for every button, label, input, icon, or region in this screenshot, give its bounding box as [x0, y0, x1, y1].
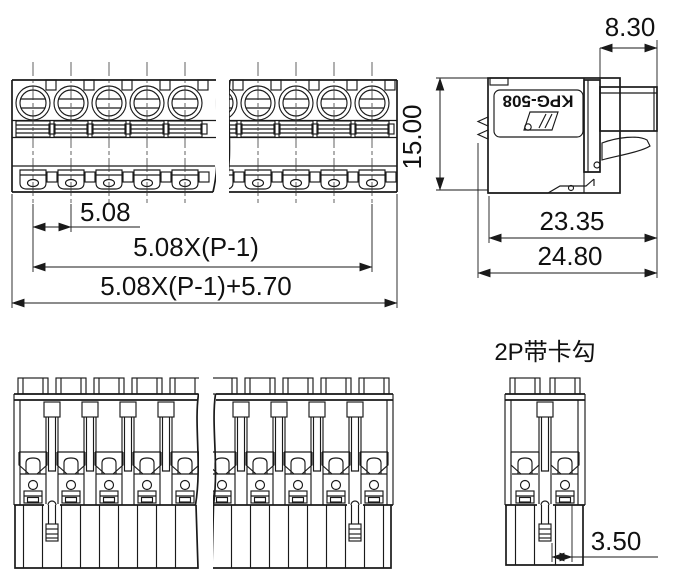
screw-pole — [92, 62, 133, 204]
clamp-cell — [95, 452, 123, 503]
clamp-cell — [208, 452, 236, 503]
screw-pole — [355, 62, 396, 204]
latch-lever — [602, 137, 650, 160]
wire-tab — [510, 378, 540, 394]
dim-plug-width: 8.30 — [605, 12, 656, 42]
rear-view-left-section — [14, 378, 200, 568]
dim-depth-body: 23.35 — [539, 206, 604, 236]
clamp-cell — [322, 452, 350, 503]
wire-tab — [321, 378, 351, 394]
wire-tab — [245, 378, 275, 394]
screw-pole — [279, 62, 320, 204]
dim-span: 5.08X(P-1) — [133, 232, 259, 262]
clamp-cell — [133, 452, 161, 503]
screw-pole — [130, 62, 171, 204]
release-rod — [44, 402, 60, 505]
clamp-cell — [19, 452, 47, 503]
dim-depth-total: 24.80 — [537, 241, 602, 271]
wire-tab — [56, 378, 86, 394]
wire-tab — [132, 378, 162, 394]
front-view: 5.08 5.08X(P-1) 5.08X(P-1)+5.70 — [12, 62, 397, 308]
front-dimensions: 5.08 5.08X(P-1) 5.08X(P-1)+5.70 — [12, 194, 397, 308]
screw-pole — [317, 62, 358, 204]
dim-total: 5.08X(P-1)+5.70 — [100, 271, 292, 301]
wire-tab — [94, 378, 124, 394]
lock-hook-pin — [347, 501, 363, 542]
release-rod — [158, 402, 174, 505]
mount-tabs — [478, 117, 488, 139]
wire-tab — [550, 378, 580, 394]
clamp-cell — [171, 452, 199, 503]
wire-tab — [283, 378, 313, 394]
clamp-cell — [511, 452, 539, 503]
hook-variant-view: 2P带卡勾 3.50 — [494, 339, 658, 565]
clamp-cell — [284, 452, 312, 503]
side-dimensions: 8.30 15.00 23.35 24.80 — [397, 12, 657, 278]
hook-view-title: 2P带卡勾 — [494, 339, 595, 366]
wire-tab — [207, 378, 237, 394]
drawing-sheet: 5.08 5.08X(P-1) 5.08X(P-1)+5.70 KPG-508 — [0, 0, 682, 587]
release-rod — [233, 402, 249, 505]
front-view-right-section — [203, 62, 397, 204]
wire-tab — [359, 378, 389, 394]
screw-pole — [168, 62, 209, 204]
release-rod — [309, 402, 325, 505]
technical-drawing: 5.08 5.08X(P-1) 5.08X(P-1)+5.70 KPG-508 — [0, 0, 682, 587]
part-number-label: KPG-508 — [503, 92, 574, 111]
rear-view-right-section — [207, 378, 393, 568]
clamp-cell — [57, 452, 85, 503]
front-view-left-section — [12, 62, 218, 204]
screw-pole — [54, 62, 95, 204]
screw-pole-partial — [203, 62, 244, 204]
dim-hook-offset: 3.50 — [591, 526, 642, 556]
clamp-cell — [551, 452, 579, 503]
clamp-cell — [246, 452, 274, 503]
screw-pole — [16, 62, 57, 204]
release-rod — [271, 402, 287, 505]
lock-hook-pin — [44, 501, 60, 542]
release-rod — [120, 402, 136, 505]
hook-dimension: 3.50 — [552, 505, 658, 562]
brand-logo — [524, 112, 558, 130]
wire-tab — [170, 378, 200, 394]
clamp-cell — [360, 452, 388, 503]
lock-hook-pin — [537, 501, 553, 542]
side-view: KPG-508 8.30 15.00 23.35 24.80 — [397, 12, 657, 278]
dim-height: 15.00 — [397, 104, 427, 169]
wire-tab — [18, 378, 48, 394]
release-rod — [347, 402, 363, 505]
screw-pole — [241, 62, 282, 204]
dim-pitch: 5.08 — [80, 197, 131, 227]
release-rod — [82, 402, 98, 505]
